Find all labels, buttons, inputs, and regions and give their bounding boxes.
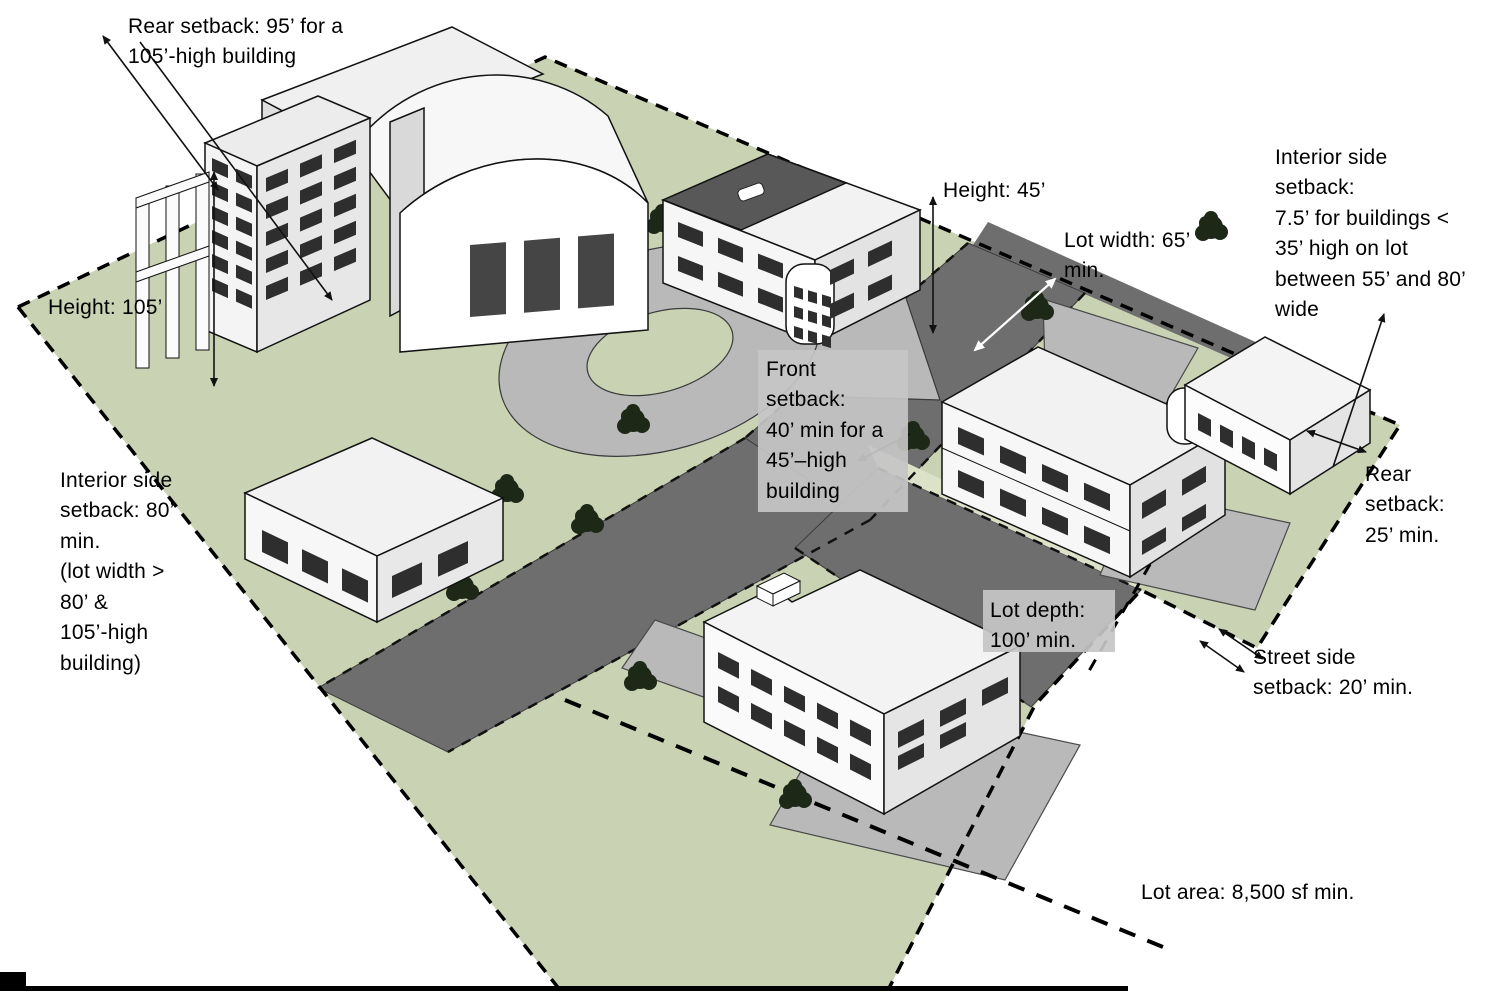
front-setback-label: Front setback: 40’ min for a 45’–high bu… <box>766 355 906 507</box>
window-icon <box>578 234 614 309</box>
window-icon <box>524 238 560 313</box>
lot-area-label: Lot area: 8,500 sf min. <box>1141 878 1355 908</box>
open-frame-structure <box>136 172 209 368</box>
street-side-setback-label: Street side setback: 20’ min. <box>1253 643 1493 704</box>
window-icon <box>470 242 506 317</box>
zoning-diagram: Rear setback: 95’ for a 105’-high buildi… <box>0 0 1496 995</box>
rear-setback-95-label: Rear setback: 95’ for a 105’-high buildi… <box>128 12 408 73</box>
bottom-rule <box>0 986 1128 991</box>
rear-setback-25-label: Rear setback: 25’ min. <box>1365 460 1493 551</box>
interior-side-setback-right-label: Interior side setback: 7.5’ for building… <box>1275 143 1495 326</box>
bottom-corner-mark <box>0 972 26 988</box>
height-105-label: Height: 105’ <box>48 293 162 323</box>
height-45-label: Height: 45’ <box>943 176 1046 206</box>
lot-depth-label: Lot depth: 100’ min. <box>990 596 1115 657</box>
lot-width-label: Lot width: 65’ min. <box>1064 226 1234 287</box>
interior-side-setback-left-label: Interior side setback: 80’ min. (lot wid… <box>60 466 255 679</box>
street-side-dim-a <box>1200 641 1244 672</box>
